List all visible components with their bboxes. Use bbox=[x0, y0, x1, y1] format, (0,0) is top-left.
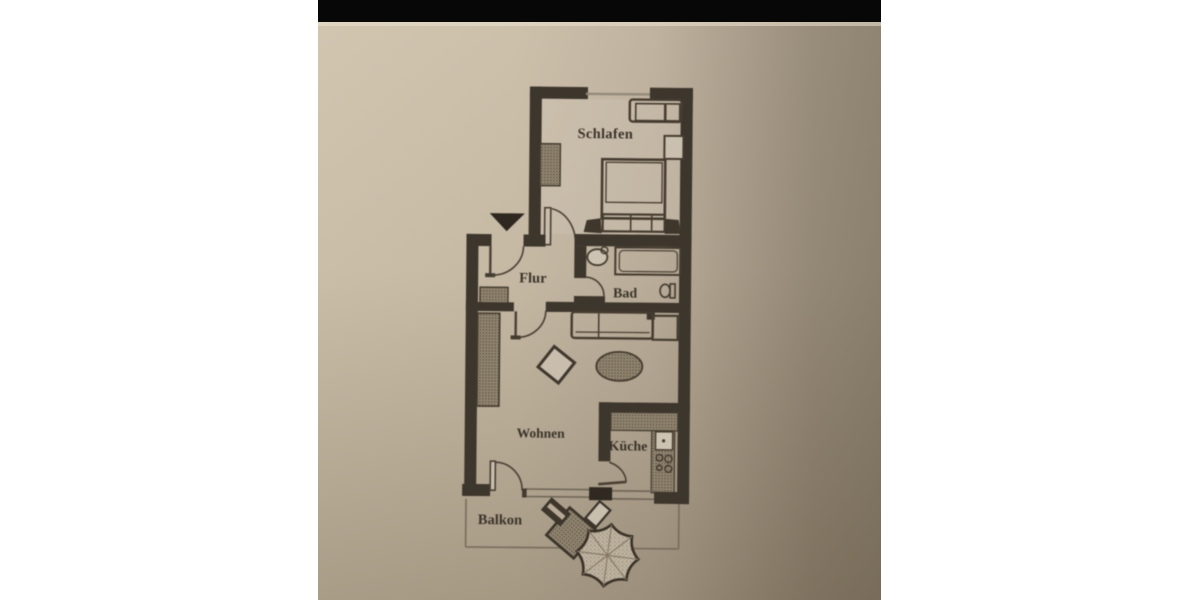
svg-text:Bad: Bad bbox=[613, 286, 637, 301]
svg-text:Balkon: Balkon bbox=[478, 512, 522, 528]
svg-text:Wohnen: Wohnen bbox=[517, 425, 566, 440]
svg-text:Schlafen: Schlafen bbox=[577, 126, 633, 143]
svg-text:Küche: Küche bbox=[608, 439, 647, 454]
svg-text:Flur: Flur bbox=[519, 270, 547, 286]
